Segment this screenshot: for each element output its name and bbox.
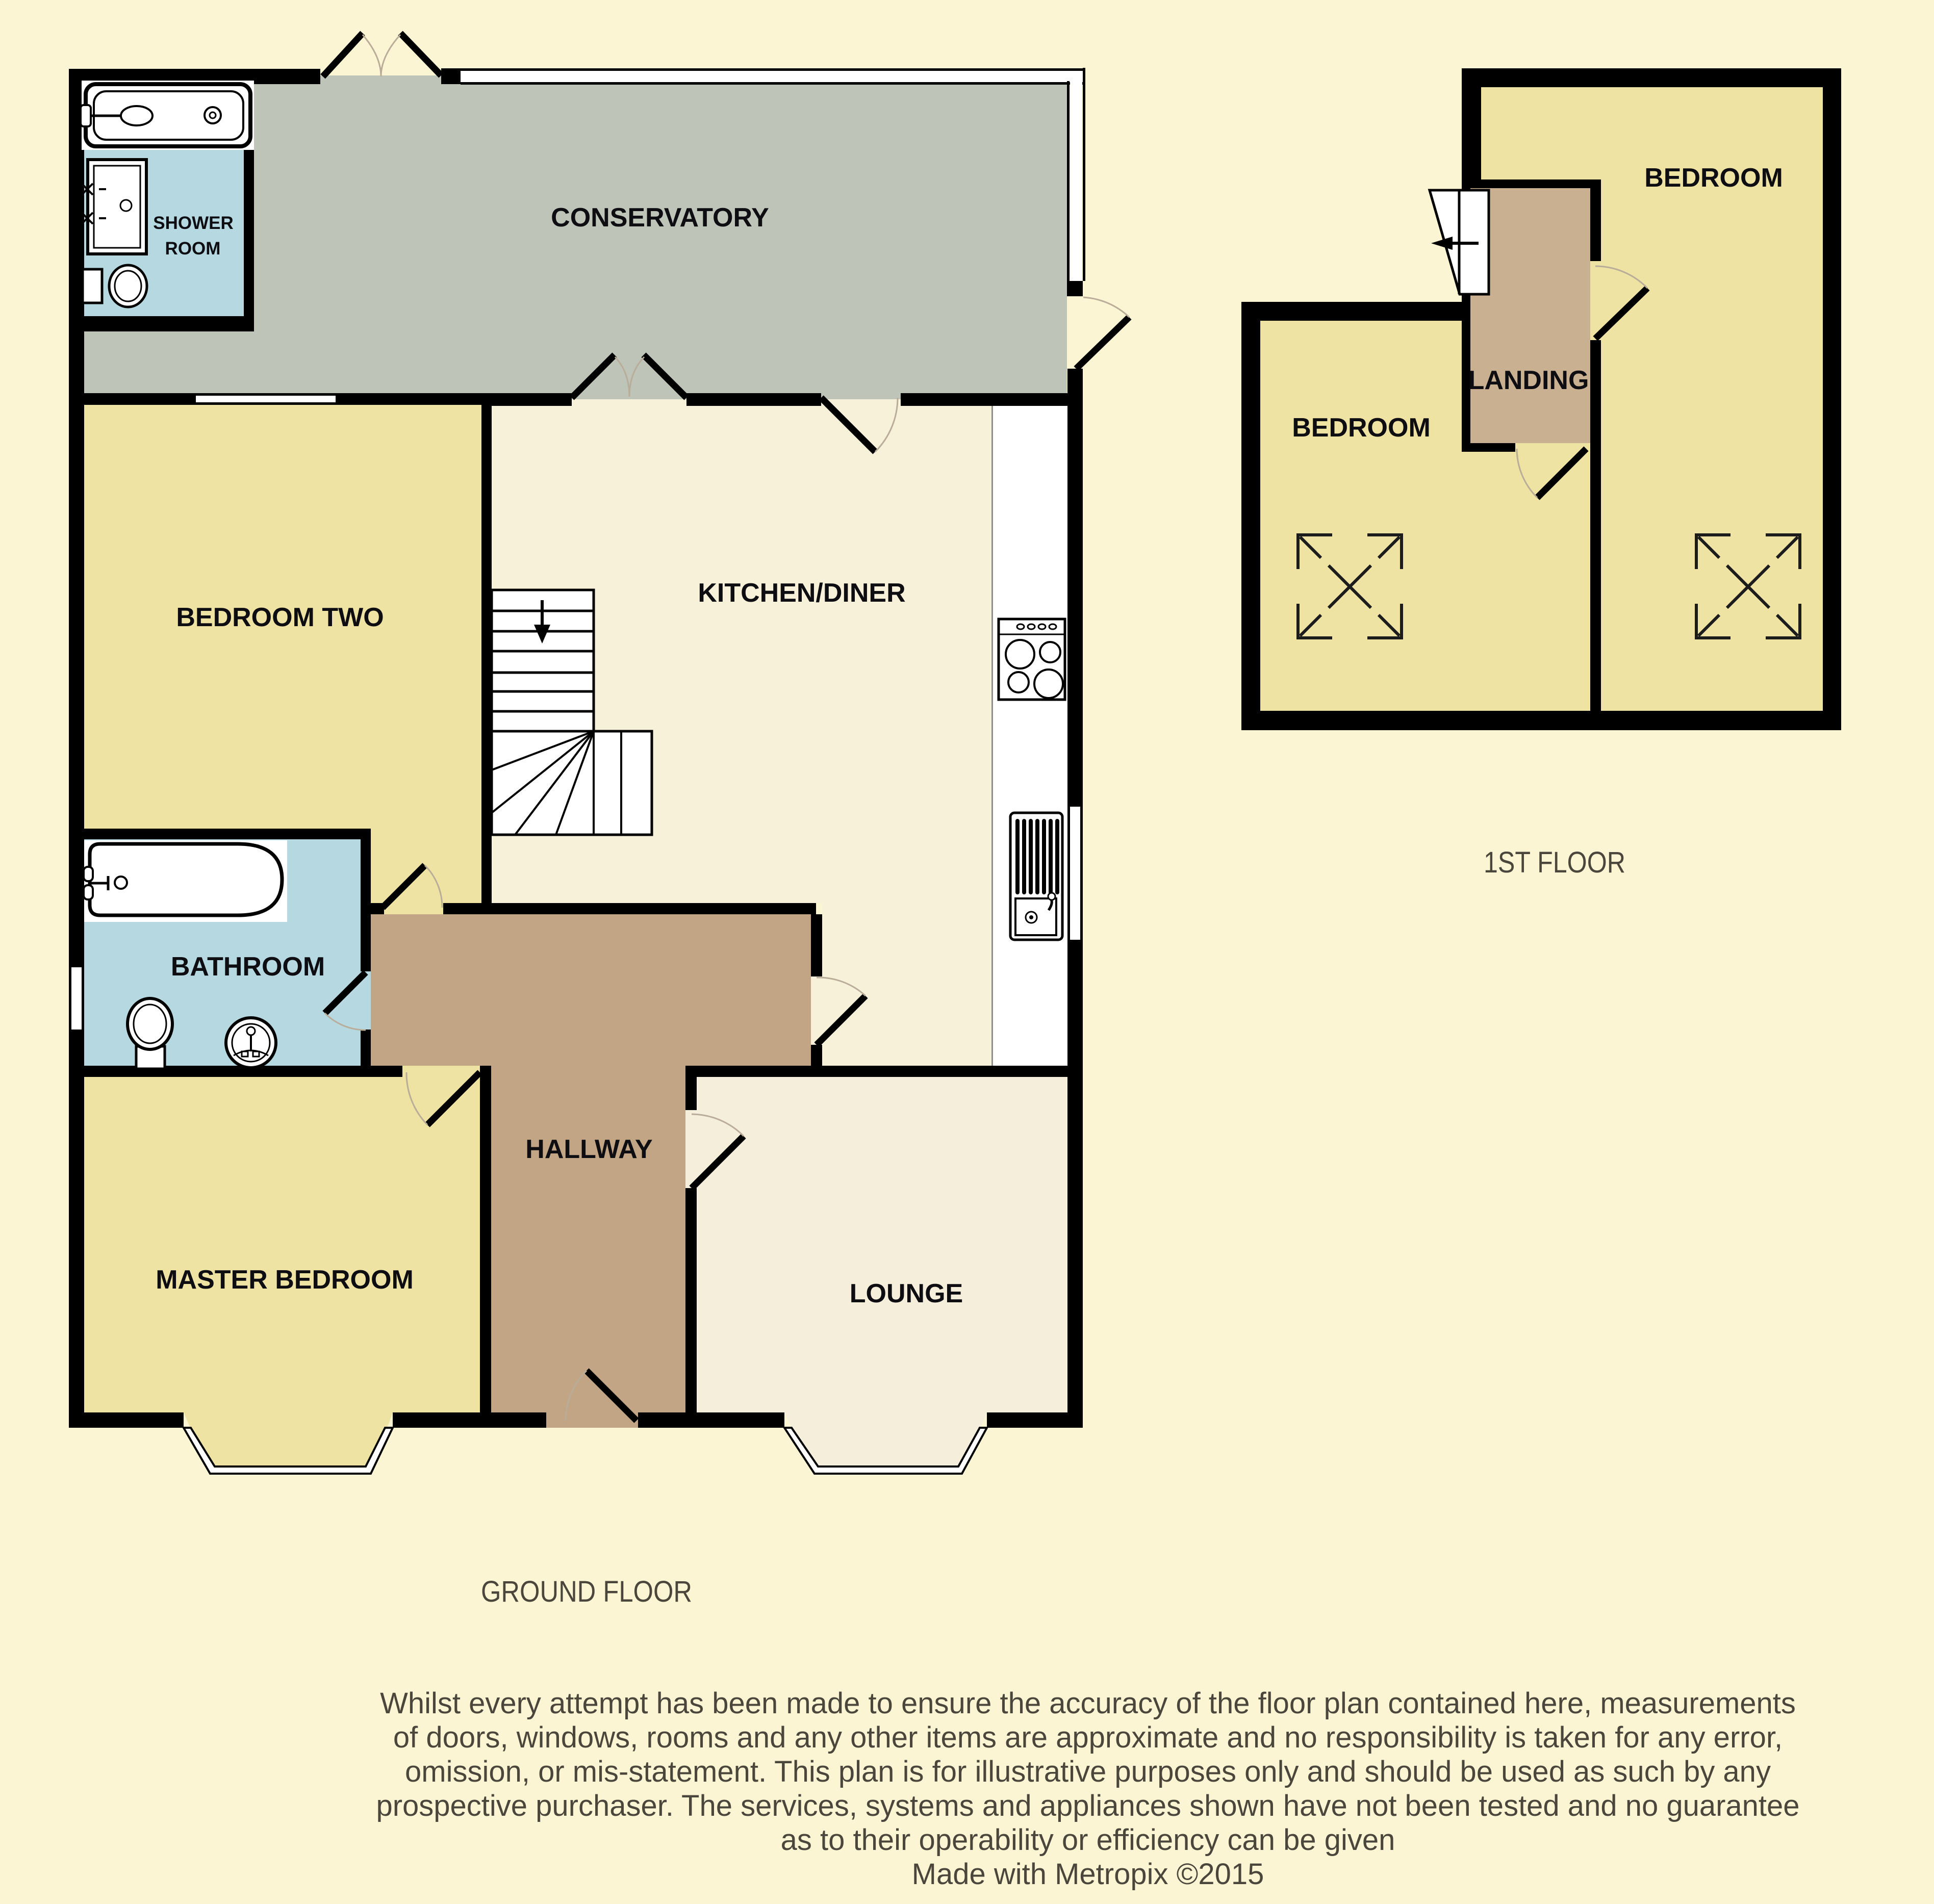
svg-text:BEDROOM TWO: BEDROOM TWO [176, 603, 384, 632]
svg-text:BATHROOM: BATHROOM [171, 952, 325, 982]
svg-text:LOUNGE: LOUNGE [850, 1279, 963, 1308]
svg-text:Whilst every attempt has been: Whilst every attempt has been made to en… [380, 1687, 1796, 1720]
svg-text:KITCHEN/DINER: KITCHEN/DINER [698, 578, 905, 608]
svg-text:MASTER BEDROOM: MASTER BEDROOM [156, 1265, 414, 1295]
svg-text:HALLWAY: HALLWAY [525, 1135, 652, 1164]
svg-text:omission, or mis-statement. Th: omission, or mis-statement. This plan is… [405, 1755, 1771, 1788]
svg-text:SHOWER: SHOWER [153, 213, 234, 233]
svg-text:prospective purchaser. The ser: prospective purchaser. The services, sys… [376, 1789, 1799, 1822]
svg-text:BEDROOM: BEDROOM [1644, 163, 1783, 193]
svg-text:BEDROOM: BEDROOM [1292, 413, 1431, 443]
svg-text:LANDING: LANDING [1468, 366, 1589, 395]
svg-text:CONSERVATORY: CONSERVATORY [551, 203, 769, 233]
svg-text:1ST FLOOR: 1ST FLOOR [1484, 846, 1625, 879]
svg-text:of doors, windows, rooms and a: of doors, windows, rooms and any other i… [393, 1721, 1783, 1754]
svg-text:as to their operability or eff: as to their operability or efficiency ca… [781, 1823, 1395, 1857]
svg-text:ROOM: ROOM [165, 239, 221, 259]
svg-text:Made with Metropix ©2015: Made with Metropix ©2015 [912, 1858, 1264, 1891]
svg-text:GROUND FLOOR: GROUND FLOOR [481, 1575, 692, 1608]
